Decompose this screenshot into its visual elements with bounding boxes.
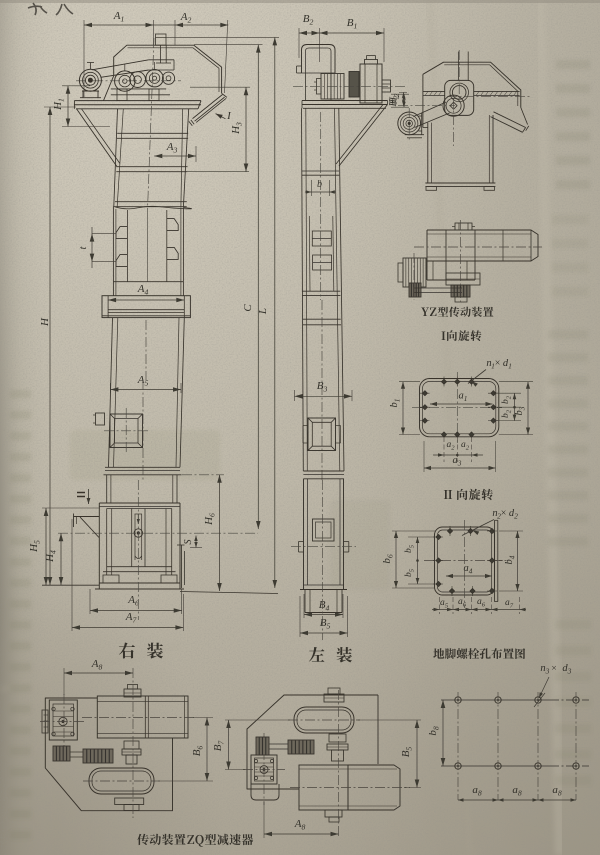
svg-text:H: H bbox=[39, 317, 51, 327]
svg-text:×: × bbox=[500, 508, 507, 519]
svg-text:×: × bbox=[551, 664, 557, 674]
svg-text:3: 3 bbox=[567, 667, 572, 676]
svg-text:C: C bbox=[242, 304, 254, 312]
svg-text:1: 1 bbox=[508, 362, 512, 371]
svg-text:b: b bbox=[317, 179, 322, 190]
svg-text:3: 3 bbox=[545, 667, 550, 676]
svg-text:L: L bbox=[257, 308, 269, 315]
svg-text:S: S bbox=[183, 540, 194, 545]
svg-text:×: × bbox=[494, 358, 501, 369]
svg-text:t: t bbox=[78, 246, 89, 249]
svg-text:2: 2 bbox=[497, 512, 501, 521]
svg-text:1: 1 bbox=[491, 362, 495, 371]
svg-text:2: 2 bbox=[514, 512, 518, 521]
